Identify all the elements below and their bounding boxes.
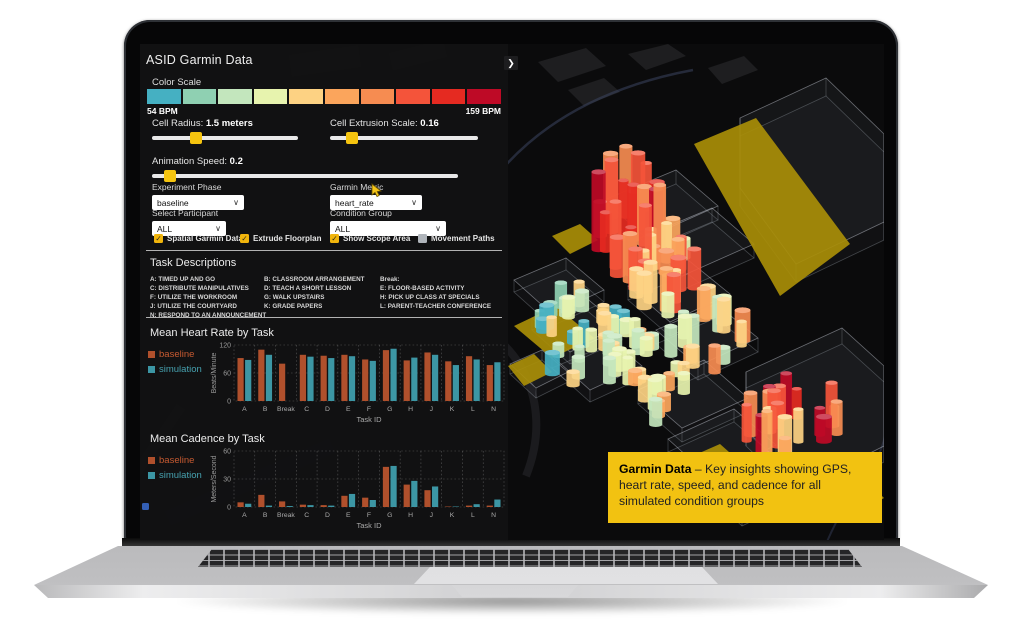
color-swatch-6 — [361, 89, 395, 104]
heat-cylinder-top — [622, 356, 632, 360]
color-swatch-7 — [396, 89, 430, 104]
heat-cylinder-top — [575, 288, 589, 293]
heat-cylinder-top — [742, 403, 752, 407]
x-tick-label: H — [408, 406, 413, 413]
heat-cylinder-top — [779, 436, 791, 440]
checkbox-show-scope-area[interactable]: ✓Show Scope Area — [330, 234, 410, 243]
baseline-bar-C[interactable] — [300, 355, 306, 401]
map-shape — [708, 56, 758, 84]
y-axis-label: Meters/Second — [211, 455, 218, 502]
baseline-bar-C[interactable] — [300, 505, 306, 507]
heat-cylinder-top — [763, 384, 776, 389]
simulation-bar-B[interactable] — [266, 355, 272, 401]
heat-cylinder-top — [793, 407, 803, 411]
task-column-1: B: CLASSROOM ARRANGEMENTD: TEACH A SHORT… — [264, 275, 378, 311]
task-description: D: TEACH A SHORT LESSON — [264, 284, 378, 293]
task-description: E: FLOOR-BASED ACTIVITY — [380, 284, 494, 293]
heat-cylinder-top — [552, 342, 564, 346]
heat-cylinder-top — [545, 350, 560, 355]
legend-swatch — [148, 472, 155, 479]
baseline-bar-J[interactable] — [424, 490, 430, 507]
chevron-down-icon: ∨ — [215, 224, 221, 233]
legend-swatch — [148, 351, 155, 358]
legend-item-baseline: baseline — [148, 455, 212, 466]
slider-track[interactable] — [330, 136, 478, 140]
x-tick-label: L — [471, 512, 475, 519]
task-description: K: GRADE PAPERS — [264, 302, 378, 311]
heat-cylinder-top — [546, 315, 556, 319]
legend-swatch — [148, 366, 155, 373]
simulation-bar-G[interactable] — [390, 349, 396, 401]
slider-track[interactable] — [152, 136, 298, 140]
heat-cylinder — [736, 320, 746, 348]
heat-cylinder-top — [639, 203, 652, 208]
heat-cylinder-top — [780, 371, 792, 375]
slider-thumb[interactable] — [164, 170, 176, 182]
simulation-bar-L[interactable] — [474, 504, 480, 507]
heat-cylinder-top — [610, 304, 622, 308]
x-tick-label: L — [471, 406, 475, 413]
heat-cylinder-top — [562, 295, 575, 300]
x-tick-label: J — [430, 406, 433, 413]
heat-cylinder-top — [555, 281, 567, 285]
heat-cylinder-top — [629, 266, 643, 271]
task-descriptions-title: Task Descriptions — [150, 257, 236, 269]
x-tick-label: A — [242, 406, 247, 413]
task-description: N: RESPOND TO AN ANNOUNCEMENT — [150, 311, 264, 320]
heat-cylinder-top — [574, 280, 585, 284]
heat-cylinder-top — [628, 368, 642, 373]
simulation-bar-B[interactable] — [266, 506, 272, 507]
x-tick-label: N — [491, 406, 496, 413]
task-column-2: Break:E: FLOOR-BASED ACTIVITYH: PICK UP … — [380, 275, 494, 311]
heat-cylinder-top — [672, 237, 685, 242]
slider-label: Cell Radius: 1.5 meters — [152, 118, 298, 129]
baseline-bar-L[interactable] — [466, 506, 472, 507]
x-tick-label: D — [325, 512, 330, 519]
heat-cylinder-top — [578, 319, 589, 323]
dropdown-experiment-phase: Experiment Phasebaseline∨ — [152, 182, 244, 210]
x-tick-label: K — [450, 512, 455, 519]
x-tick-label: D — [325, 406, 330, 413]
heat-cylinder-top — [658, 248, 674, 254]
heat-cylinder — [708, 343, 720, 374]
heat-cylinder-top — [574, 344, 584, 348]
legend-item-simulation: simulation — [148, 364, 212, 375]
heat-cylinder — [637, 270, 652, 310]
dropdown-value: ALL — [157, 224, 172, 234]
heat-cylinder-top — [678, 310, 689, 314]
slider-cell-radius: Cell Radius: 1.5 meters — [152, 118, 298, 140]
x-tick-label: C — [304, 406, 309, 413]
map-shape — [628, 44, 686, 70]
simulation-bar-H[interactable] — [411, 358, 417, 401]
heat-cylinder-top — [678, 361, 690, 365]
simulation-bar-H[interactable] — [411, 481, 417, 507]
heat-cylinder-top — [697, 286, 711, 291]
heat-cylinder-top — [667, 272, 681, 277]
slider-animation-speed: Animation Speed: 0.2 — [152, 156, 458, 178]
legend-label: simulation — [159, 364, 202, 375]
page-title: ASID Garmin Data — [146, 53, 253, 67]
x-tick-label: G — [387, 406, 392, 413]
heat-cylinder-top — [628, 246, 642, 251]
heat-cylinder-top — [678, 371, 690, 375]
dropdown-label: Experiment Phase — [152, 182, 244, 192]
simulation-bar-E[interactable] — [349, 356, 355, 401]
heat-cylinder-top — [661, 291, 674, 296]
checked-checkbox-icon[interactable]: ✓ — [240, 234, 249, 243]
heat-cylinder-top — [686, 344, 700, 349]
divider — [146, 250, 502, 251]
checkbox-label: Movement Paths — [431, 234, 495, 243]
heat-cylinder-top — [687, 247, 701, 252]
heat-cylinder — [793, 407, 803, 443]
checkbox-label: Extrude Floorplan — [253, 234, 321, 243]
slider-thumb[interactable] — [190, 132, 202, 144]
x-tick-label: C — [304, 512, 309, 519]
task-description: Break: — [380, 275, 494, 284]
slider-track[interactable] — [152, 174, 458, 178]
baseline-bar-F[interactable] — [362, 498, 368, 507]
task-description: J: UTILIZE THE COURTYARD — [150, 302, 264, 311]
map-logo-icon — [142, 503, 149, 510]
checked-checkbox-icon[interactable]: ✓ — [154, 234, 163, 243]
x-tick-label: N — [491, 512, 496, 519]
x-axis-label: Task ID — [356, 415, 382, 424]
dropdown-label: Condition Group — [330, 208, 446, 218]
scale-max-label: 159 BPM — [466, 106, 501, 116]
color-swatch-9 — [467, 89, 501, 104]
heat-cylinder-top — [612, 346, 627, 351]
task-description: B: CLASSROOM ARRANGEMENT — [264, 275, 378, 284]
y-tick-label: 0 — [227, 399, 231, 406]
dropdown-select-participant: Select ParticipantALL∨ — [152, 208, 226, 236]
simulation-bar-D[interactable] — [328, 358, 334, 401]
heat-cylinder-top — [644, 260, 658, 265]
x-tick-label: B — [263, 512, 268, 519]
simulation-bar-N[interactable] — [494, 500, 500, 507]
x-tick-label: E — [346, 406, 351, 413]
task-description: H: PICK UP CLASS AT SPECIALS — [380, 293, 494, 302]
heat-cylinder-top — [649, 397, 662, 402]
heat-cylinder-top — [610, 199, 622, 203]
baseline-bar-E[interactable] — [341, 355, 347, 401]
control-panel: ASID Garmin Data Color Scale 54 BPM 159 … — [140, 44, 508, 540]
x-tick-label: F — [367, 512, 371, 519]
heat-cylinder-top — [671, 255, 687, 261]
slider-cell-extrusion-scale: Cell Extrusion Scale: 0.16 — [330, 118, 478, 140]
cadence-legend: baselinesimulation — [148, 455, 212, 485]
heat-cylinder — [664, 324, 677, 358]
heat-cylinder-top — [761, 409, 772, 413]
baseline-bar-D[interactable] — [321, 356, 327, 401]
y-tick-label: 60 — [223, 449, 231, 456]
baseline-bar-L[interactable] — [466, 356, 472, 401]
checked-checkbox-icon[interactable]: ✓ — [330, 234, 339, 243]
heat-cylinder-top — [618, 179, 628, 183]
screen: ASID Garmin Data Color Scale 54 BPM 159 … — [140, 44, 884, 540]
heat-cylinder-top — [653, 183, 666, 188]
baseline-bar-Break[interactable] — [279, 364, 285, 401]
heat-cylinder-top — [605, 157, 619, 162]
baseline-bar-K[interactable] — [445, 361, 451, 401]
color-scale-range: 54 BPM 159 BPM — [147, 106, 501, 116]
heart-rate-legend: baselinesimulation — [148, 349, 212, 379]
garmin-data-callout: Garmin Data – Key insights showing GPS, … — [608, 452, 882, 523]
y-tick-label: 0 — [227, 505, 231, 512]
slider-label: Cell Extrusion Scale: 0.16 — [330, 118, 478, 129]
task-description: L: PARENT-TEACHER CONFERENCE — [380, 302, 494, 311]
baseline-bar-A[interactable] — [237, 358, 243, 401]
legend-item-baseline: baseline — [148, 349, 212, 360]
heat-cylinder-top — [657, 392, 671, 397]
heat-cylinder-top — [598, 303, 610, 307]
page: ASID Garmin Data Color Scale 54 BPM 159 … — [0, 0, 1024, 633]
x-tick-label: B — [263, 406, 268, 413]
baseline-bar-E[interactable] — [341, 496, 347, 507]
color-swatch-4 — [289, 89, 323, 104]
heat-cylinder — [687, 247, 701, 291]
heat-cylinder-top — [661, 221, 672, 225]
x-tick-label: Break — [277, 512, 295, 519]
task-description: F: UTILIZE THE WORKROOM — [150, 293, 264, 302]
simulation-bar-J[interactable] — [432, 486, 438, 507]
heart-rate-chart[interactable]: 060120ABBreakCDEFGHJKLNBeats/MinuteTask … — [210, 337, 510, 429]
heat-cylinder-top — [678, 314, 692, 319]
legend-item-simulation: simulation — [148, 470, 212, 481]
callout-title: Garmin Data — [619, 462, 691, 476]
simulation-bar-C[interactable] — [307, 357, 313, 401]
heat-cylinder-top — [744, 391, 758, 396]
heat-cylinder-top — [607, 333, 622, 339]
slider-thumb[interactable] — [346, 132, 358, 144]
baseline-bar-B[interactable] — [258, 495, 264, 507]
x-axis-label: Task ID — [356, 521, 382, 530]
chevron-down-icon: ∨ — [233, 198, 239, 207]
heat-cylinder — [717, 297, 731, 334]
legend-label: baseline — [159, 455, 194, 466]
checkbox-spatial-garmin-data[interactable]: ✓Spatial Garmin Data — [154, 234, 243, 243]
task-description: G: WALK UPSTAIRS — [264, 293, 378, 302]
simulation-bar-G[interactable] — [390, 466, 396, 507]
heat-cylinder-top — [603, 151, 618, 156]
heat-cylinder-top — [625, 225, 636, 229]
task-description: C: DISTRIBUTE MANIPULATIVES — [150, 284, 264, 293]
color-scale — [147, 89, 501, 104]
simulation-bar-J[interactable] — [432, 355, 438, 401]
baseline-bar-G[interactable] — [383, 350, 389, 401]
simulation-bar-C[interactable] — [307, 505, 313, 507]
dropdown-value: baseline — [157, 198, 189, 208]
heat-cylinder-top — [778, 414, 792, 419]
x-tick-label: F — [367, 406, 371, 413]
color-swatch-5 — [325, 89, 359, 104]
cursor-icon — [370, 183, 383, 198]
x-tick-label: J — [430, 512, 433, 519]
heat-cylinder-top — [539, 302, 554, 307]
cadence-chart[interactable]: 03060ABBreakCDEFGHJKLNMeters/SecondTask … — [210, 443, 510, 535]
color-swatch-1 — [183, 89, 217, 104]
heat-cylinder-top — [619, 144, 632, 149]
baseline-bar-A[interactable] — [237, 502, 243, 507]
simulation-bar-A[interactable] — [245, 360, 251, 401]
unchecked-checkbox-icon[interactable] — [418, 234, 427, 243]
y-tick-label: 120 — [219, 343, 231, 350]
simulation-bar-L[interactable] — [474, 359, 480, 401]
heat-cylinder-top — [767, 388, 781, 393]
x-tick-label: H — [408, 512, 413, 519]
heat-cylinder-top — [572, 327, 583, 331]
heat-cylinder-top — [814, 406, 825, 410]
heat-cylinder-top — [736, 320, 746, 324]
heat-cylinder-top — [632, 328, 645, 333]
dropdown-value: heart_rate — [335, 198, 374, 208]
heat-cylinder-top — [566, 369, 579, 374]
heat-cylinder-top — [585, 328, 597, 332]
baseline-bar-D[interactable] — [321, 505, 327, 507]
divider — [146, 317, 502, 318]
heat-cylinder-top — [660, 266, 673, 271]
checkbox-movement-paths[interactable]: Movement Paths — [418, 234, 495, 243]
heat-cylinder-top — [640, 336, 653, 341]
heat-cylinder-top — [648, 377, 662, 382]
x-tick-label: A — [242, 512, 247, 519]
heat-cylinder-top — [629, 317, 641, 321]
heat-cylinder-top — [664, 324, 677, 329]
heat-cylinder-top — [771, 401, 784, 406]
legend-swatch — [148, 457, 155, 464]
heat-cylinder — [831, 399, 843, 436]
simulation-bar-N[interactable] — [494, 362, 500, 401]
y-tick-label: 30 — [223, 477, 231, 484]
simulation-bar-Break[interactable] — [287, 506, 293, 507]
baseline-bar-H[interactable] — [404, 485, 410, 507]
dropdown-label: Select Participant — [152, 208, 226, 218]
heat-cylinder-top — [663, 371, 674, 375]
scope-area — [552, 224, 598, 254]
color-swatch-0 — [147, 89, 181, 104]
x-tick-label: K — [450, 406, 455, 413]
simulation-bar-E[interactable] — [349, 494, 355, 507]
task-description: A: TIMED UP AND GO — [150, 275, 264, 284]
heat-cylinder-top — [637, 270, 652, 275]
simulation-bar-K[interactable] — [453, 365, 459, 401]
checkbox-label: Spatial Garmin Data — [167, 234, 243, 243]
slider-label: Animation Speed: 0.2 — [152, 156, 458, 167]
x-tick-label: Break — [277, 406, 295, 413]
heat-cylinder-top — [572, 355, 585, 360]
baseline-bar-J[interactable] — [424, 352, 430, 401]
heat-cylinder — [742, 403, 752, 443]
y-tick-label: 60 — [223, 371, 231, 378]
chevron-down-icon: ∨ — [411, 198, 417, 207]
heat-cylinder-top — [708, 343, 720, 347]
legend-label: baseline — [159, 349, 194, 360]
heat-cylinder-top — [623, 231, 637, 236]
heat-cylinder-top — [598, 311, 611, 316]
baseline-bar-F[interactable] — [362, 359, 368, 401]
checkbox-label: Show Scope Area — [343, 234, 410, 243]
heat-cylinder-top — [591, 169, 605, 174]
baseline-bar-H[interactable] — [404, 360, 410, 401]
heat-cylinder-top — [826, 381, 838, 385]
color-swatch-3 — [254, 89, 288, 104]
baseline-bar-Break[interactable] — [279, 501, 285, 507]
y-axis-label: Beats/Minute — [211, 352, 218, 393]
heat-cylinder-top — [665, 216, 680, 221]
color-swatch-2 — [218, 89, 252, 104]
simulation-bar-F[interactable] — [370, 361, 376, 401]
simulation-bar-F[interactable] — [370, 500, 376, 507]
baseline-bar-N[interactable] — [487, 365, 493, 401]
chevron-down-icon: ∨ — [435, 224, 441, 233]
heat-cylinder-top — [603, 356, 616, 361]
simulation-bar-A[interactable] — [245, 504, 251, 507]
heat-cylinder-top — [631, 150, 645, 155]
heat-cylinder — [678, 314, 692, 349]
heat-cylinder-top — [831, 399, 843, 403]
heat-cylinder-top — [603, 338, 615, 342]
baseline-bar-G[interactable] — [383, 467, 389, 507]
x-tick-label: G — [387, 512, 392, 519]
legend-label: simulation — [159, 470, 202, 481]
baseline-bar-N[interactable] — [487, 506, 493, 507]
heat-cylinder-top — [735, 307, 751, 313]
baseline-bar-B[interactable] — [258, 350, 264, 401]
color-scale-label: Color Scale — [152, 77, 201, 88]
dropdown-condition-group: Condition GroupALL∨ — [330, 208, 446, 236]
task-column-0: A: TIMED UP AND GOC: DISTRIBUTE MANIPULA… — [150, 275, 264, 320]
x-tick-label: E — [346, 512, 351, 519]
simulation-bar-D[interactable] — [328, 506, 334, 507]
dropdown-value: ALL — [335, 224, 350, 234]
color-swatch-8 — [432, 89, 466, 104]
checkbox-extrude-floorplan[interactable]: ✓Extrude Floorplan — [240, 234, 321, 243]
heat-cylinder-top — [617, 309, 630, 314]
heat-cylinder-top — [717, 297, 731, 302]
heat-cylinder-top — [816, 414, 832, 420]
heat-cylinder-top — [792, 387, 802, 391]
scale-min-label: 54 BPM — [147, 106, 178, 116]
map-shape — [538, 48, 606, 82]
